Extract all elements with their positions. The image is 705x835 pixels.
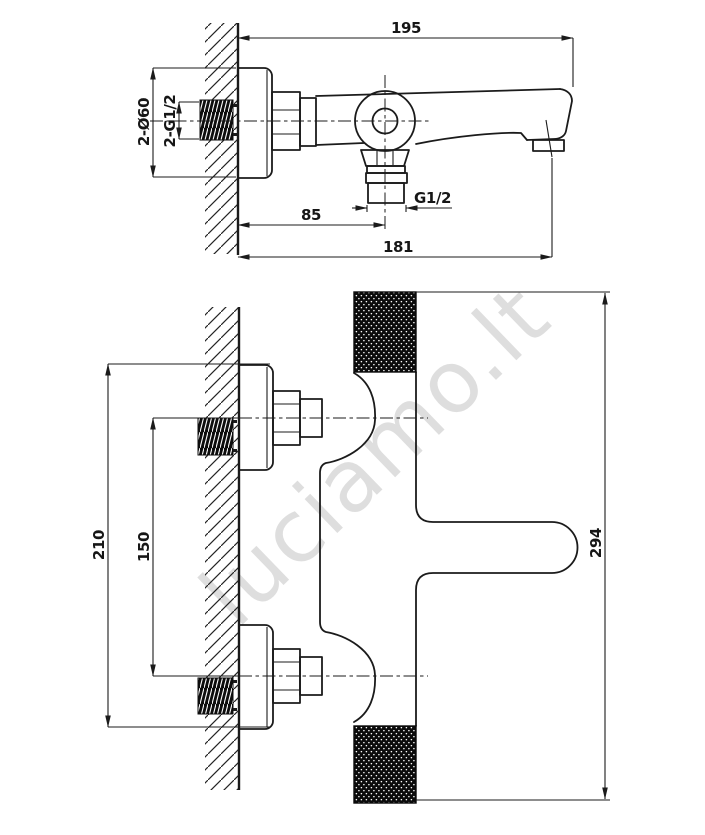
dim-label-210: 210 bbox=[90, 530, 108, 560]
dim-label-g12: G1/2 bbox=[414, 189, 451, 207]
escutcheon bbox=[238, 68, 272, 178]
dim-label-2-g12: 2-G1/2 bbox=[161, 95, 179, 148]
wall-hatching-front bbox=[205, 307, 239, 790]
dimension-195: 195 bbox=[238, 19, 573, 87]
faucet-technical-drawing: luciamo.lt bbox=[0, 0, 705, 835]
lower-wall-thread bbox=[198, 678, 237, 714]
upper-knurled-handle bbox=[354, 292, 416, 372]
aerator bbox=[533, 140, 564, 151]
wall-thread bbox=[200, 100, 237, 140]
dimension-85: 85 bbox=[238, 206, 385, 225]
dim-label-85: 85 bbox=[301, 206, 321, 224]
drawing-canvas: luciamo.lt bbox=[0, 0, 705, 835]
lower-knurled-handle bbox=[354, 726, 416, 803]
dim-label-181: 181 bbox=[383, 238, 413, 256]
dim-label-2-d60: 2-Ø60 bbox=[135, 98, 153, 146]
side-view: 195 2-Ø60 2-G1/2 G1/2 85 bbox=[135, 19, 573, 257]
dimension-outlet-thread: G1/2 bbox=[352, 189, 452, 212]
upper-wall-thread bbox=[198, 418, 237, 455]
dim-label-150: 150 bbox=[135, 532, 153, 562]
wall-section-front bbox=[205, 307, 239, 790]
centerlines bbox=[150, 75, 432, 229]
dim-label-294: 294 bbox=[587, 528, 605, 558]
dim-label-195: 195 bbox=[391, 19, 421, 37]
